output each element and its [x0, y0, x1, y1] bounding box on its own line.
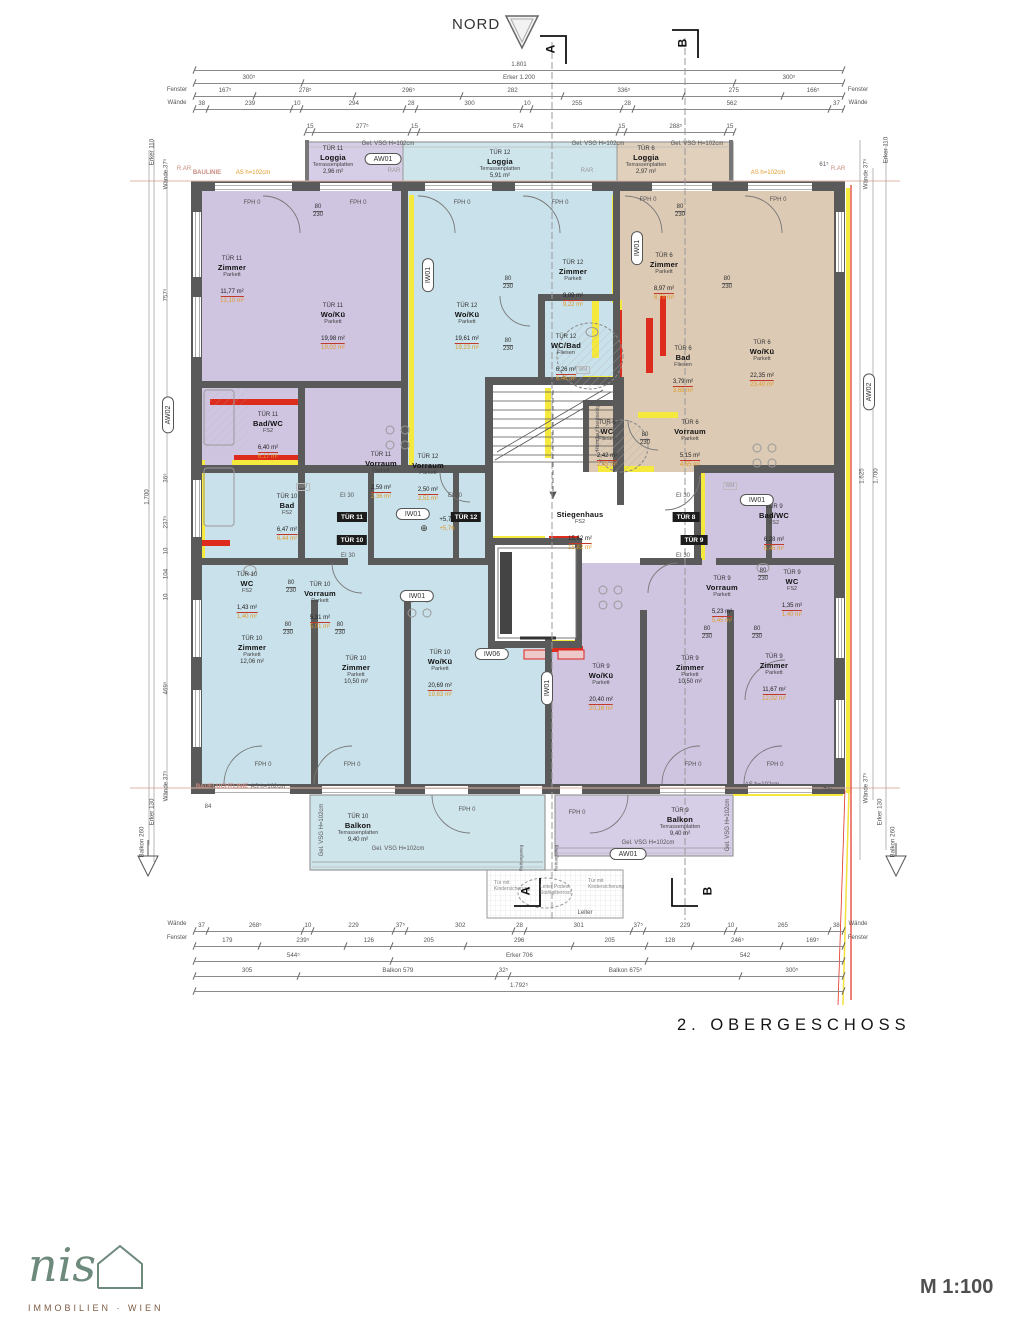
room-vorraum-t6: TÜR 6VorraumParkett5,15 m²4,55 m²: [674, 420, 706, 469]
dim-row-top-erker: 300⁵Erker 1.200300⁵: [195, 73, 843, 86]
dim: 305: [195, 966, 299, 979]
dim: 239⁵: [260, 936, 346, 949]
door-size: 80230: [313, 204, 323, 219]
gel-vsg-vert-1: Gel. VSG H=102cm: [319, 804, 325, 857]
floorplan-canvas: NORD A B A B 1.801 300⁵Erker 1.200300⁵ 1…: [0, 0, 1026, 1333]
dim: 574: [419, 122, 618, 135]
dim: 302: [407, 921, 514, 934]
vdim: 10: [163, 548, 170, 555]
dim: 296: [466, 936, 573, 949]
dim-row-top-fenster: 167⁵278⁵296⁵282336⁵275166⁵: [195, 86, 843, 99]
room-badwc-t11: TÜR 11Bad/WCFS26,40 m²6,17 m²: [253, 412, 283, 461]
vdim: Balkon 260: [890, 827, 897, 858]
room-zimmer2-t9: TÜR 9ZimmerParkett11,67 m²12,02 m²: [760, 654, 788, 703]
ei30-label: EI 30: [676, 493, 690, 499]
section-b-top: B: [675, 39, 689, 48]
vdim: Erker 130: [149, 799, 156, 826]
gel-vsg-bot-2: Gel. VSG H=102cm: [622, 840, 675, 846]
vdim: 757⁵: [163, 289, 170, 302]
dim: 205: [573, 936, 647, 949]
dim: 229: [645, 921, 726, 934]
rettungsweg-label: Rettungsweg: [519, 845, 524, 871]
fph-label: FPH 0: [349, 200, 366, 206]
scale-label: M 1:100: [920, 1276, 993, 1299]
room-stiegenhaus: StiegenhausFS215,62 m²15,82 m²: [557, 510, 604, 552]
fph-label: FPH 0: [254, 762, 271, 768]
dim: 1.792⁵: [195, 981, 843, 994]
section-a-top: A: [543, 45, 557, 54]
gel-vsg-bot-1: Gel. VSG H=102cm: [372, 846, 425, 852]
baulinie-label: BAULINIE: [193, 170, 221, 176]
vdim: 1.625: [859, 468, 866, 483]
fenster-label-left: Fenster: [167, 87, 187, 93]
door-size: 80230: [283, 622, 293, 637]
baufluchtlinie-label: BAUFLUCHTLINIE: [196, 784, 248, 790]
dim: 300: [417, 99, 522, 112]
fph-label: FPH 0: [453, 200, 470, 206]
fph-label: FPH 0: [551, 200, 568, 206]
dim: 336⁵: [563, 86, 684, 99]
room-wc-t9: TÜR 9WCFS21,35 m²1,40 m²: [782, 570, 802, 619]
rar-loggia-2: RAR: [581, 168, 594, 174]
oval-iw01-5: IW01: [740, 494, 774, 506]
dim: 239: [208, 99, 292, 112]
door-size: 80230: [503, 338, 513, 353]
as-label-tl: AS h=102cm: [236, 170, 271, 176]
wm-label: WM: [723, 482, 737, 490]
room-balkon-t9: TÜR 9BalkonTerrassenplatten9,40 m²: [660, 808, 701, 838]
dim: 544⁵: [195, 951, 392, 964]
dim: 300⁵: [195, 73, 303, 86]
dim: 166⁵: [783, 86, 843, 99]
company-logo: nis IMMOBILIEN · WIEN: [28, 1240, 164, 1313]
fenster-label-br: Fenster: [848, 935, 868, 941]
vdim: 36⁵: [163, 473, 170, 482]
vdim: Erker 130: [877, 799, 884, 826]
dim: 246⁵: [693, 936, 782, 949]
rettungsweg-label: Rettungsweg: [554, 845, 559, 871]
dim: 562: [634, 99, 831, 112]
room-loggia-t6: TÜR 6LoggiaTerrassenplatten2,97 m²: [626, 146, 667, 176]
dim-61: 61⁵: [819, 162, 828, 168]
as-label-br: AS h=102cm: [745, 782, 780, 788]
oval-iw01-1: IW01: [422, 258, 434, 292]
as-label-bl: AS h=102cm: [251, 784, 286, 790]
vdim: 469⁵: [163, 682, 170, 695]
dim: 179: [195, 936, 260, 949]
room-vorraum-t12: TÜR 12VorraumParkett2,50 m²2,51 m²: [412, 454, 444, 503]
dim: 265: [736, 921, 829, 934]
vdim: Erker 110: [883, 137, 890, 163]
vdim: 10: [163, 594, 170, 601]
dim-row-top-inner: 15277⁵1557415288⁵15: [306, 122, 734, 135]
room-zimmer-t6: TÜR 6ZimmerParkett8,97 m²8,78 m²: [650, 253, 678, 302]
tag-tuer-10: TÜR 10: [337, 535, 367, 545]
dim: 268⁵: [208, 921, 303, 934]
room-loggia-t11: TÜR 11LoggiaTerrassenplatten2,96 m²: [313, 146, 354, 176]
page-title: 2. OBERGESCHOSS: [677, 1016, 911, 1035]
door-size: 80230: [722, 276, 732, 291]
dim-row-bottom-waende: 37268⁵1022937⁵3022830137⁵2291026538: [195, 921, 843, 934]
door-size: 80230: [758, 568, 768, 583]
dim: 169⁵: [782, 936, 843, 949]
level-lower: +5,76: [439, 526, 454, 532]
vdim: Wände 37⁵: [863, 773, 870, 804]
room-woku-t11: TÜR 11Wo/KüParkett19,98 m²19,02 m²: [321, 303, 346, 352]
gel-vsg-vert-2: Gel. VSG H=102cm: [725, 799, 731, 852]
oval-iw01-4: IW01: [400, 590, 434, 602]
dim: 542: [647, 951, 843, 964]
fph-label: FPH 0: [343, 762, 360, 768]
dim: 126: [346, 936, 392, 949]
dim: 300⁵: [735, 73, 843, 86]
room-vorraum-t9: TÜR 9VorraumParkett5,23 m²5,45 m²: [706, 576, 738, 625]
fph-label: FPH 0: [684, 762, 701, 768]
section-a-bottom: A: [518, 887, 532, 896]
vdim: Balkon 260: [139, 827, 146, 858]
rar-label-tl: R.AR: [177, 166, 191, 172]
dim: 275: [684, 86, 783, 99]
rar-loggia-1: RAR: [388, 168, 401, 174]
fenster-label-bl: Fenster: [167, 935, 187, 941]
fenster-label-right: Fenster: [848, 87, 868, 93]
door-size: 80230: [752, 626, 762, 641]
north-arrow-icon: [506, 16, 538, 48]
door-size: 80230: [335, 622, 345, 637]
fph-label: FPH 0: [769, 197, 786, 203]
tag-tuer-12: TÜR 12: [451, 512, 481, 522]
wm-label: WM: [296, 483, 310, 491]
room-vorraum-t10: TÜR 10VorraumParkett5,31 m²5,01 m²: [304, 582, 336, 631]
oval-iw01-2: IW01: [631, 231, 643, 265]
door-size: 80230: [702, 626, 712, 641]
vdim: Erker 110: [149, 139, 156, 165]
dim: 1.801: [195, 60, 843, 73]
waende-label-bl: Wände: [167, 921, 186, 927]
room-zimmer-t12: TÜR 12ZimmerParkett9,09 m²9,22 m²: [559, 260, 587, 309]
dim: 15: [726, 122, 734, 135]
dim: 294: [302, 99, 405, 112]
ei30-label: EI 30: [340, 493, 354, 499]
ei30-label: EI 30: [676, 553, 690, 559]
room-balkon-t10: TÜR 10BalkonTerrassenplatten9,40 m²: [338, 814, 379, 844]
tag-tuer-8: TÜR 8: [673, 512, 700, 522]
gel-vsg-top-3: Gel. VSG H=102cm: [671, 141, 724, 147]
oval-aw02-right: AW02: [863, 374, 875, 411]
room-zimmer2-t10: TÜR 10ZimmerParkett10,50 m²: [342, 656, 370, 686]
room-wc-t10: TÜR 10WCFS21,43 m²1,40 m²: [237, 572, 258, 621]
door-size: 80230: [675, 204, 685, 219]
fph-label: FPH 0: [458, 807, 475, 813]
vdim: Wände 37⁵: [863, 159, 870, 190]
ei30-label: EI 30: [448, 493, 462, 499]
floor-plan-drawing: [0, 0, 1026, 1333]
oval-iw06: IW06: [475, 648, 509, 660]
dim-row-bottom-erker: 544⁵Erker 706542: [195, 951, 843, 964]
room-bad-t10: TÜR 10BadFS26,47 m²6,44 m²: [277, 494, 298, 543]
dim: 300⁵: [741, 966, 843, 979]
room-woku-t9: TÜR 9Wo/KüParkett20,40 m²20,16 m²: [589, 664, 614, 713]
dim: 255: [532, 99, 621, 112]
dim: Balkon 579: [299, 966, 497, 979]
fph-label: FPH 0: [766, 762, 783, 768]
oval-aw01-top: AW01: [365, 153, 402, 165]
handlauf-label: Handlauf beidseitig: [595, 405, 601, 452]
rar-label-tr: R.AR: [831, 166, 845, 172]
dim: 288⁵: [626, 122, 726, 135]
vdim: 1.700: [144, 489, 151, 504]
fph-label: FPH 0: [243, 200, 260, 206]
dim: 167⁵: [195, 86, 255, 99]
kindersicherung-label: Tür mit Kindersicherung: [588, 878, 640, 891]
room-zimmer-t11: TÜR 11ZimmerParkett11,77 m²12,10 m²: [218, 256, 246, 305]
logo-script: nis: [28, 1238, 96, 1292]
oval-aw02-left: AW02: [162, 397, 174, 434]
vdim: 237⁵: [163, 516, 170, 529]
section-b-bottom: B: [700, 887, 714, 896]
vdim: Wände 37⁵: [163, 159, 170, 190]
fph-label: FPH 0: [639, 197, 656, 203]
dim: 38: [830, 921, 843, 934]
as-label-tr: AS h=102cm: [751, 170, 786, 176]
dim: 37: [830, 99, 843, 112]
room-woku-t6: TÜR 6Wo/KüParkett22,35 m²23,40 m²: [750, 340, 775, 389]
dim: Erker 706: [392, 951, 647, 964]
dim: 205: [392, 936, 466, 949]
tag-tuer-9: TÜR 9: [681, 535, 708, 545]
dim-74: 74⁵: [823, 788, 832, 794]
gel-vsg-top-2: Gel. VSG H=102cm: [572, 141, 625, 147]
dim: Balkon 675⁵: [510, 966, 740, 979]
dim: Erker 1.200: [303, 73, 735, 86]
waende-label-right: Wände: [848, 100, 867, 106]
room-loggia-t12: TÜR 12LoggiaTerrassenplatten5,91 m²: [480, 150, 521, 180]
dim: 301: [526, 921, 632, 934]
dim-row-top-total: 1.801: [195, 60, 843, 73]
vdim: 104: [163, 569, 170, 579]
level-point-icon: ⊕: [420, 523, 428, 534]
fph-label: FPH 0: [568, 810, 585, 816]
dim-row-top-waende: 382391029428300102552856237: [195, 99, 843, 112]
room-badwc-t9: TÜR 9Bad/WCFS26,28 m²6,45 m²: [759, 504, 789, 553]
room-woku-t12: TÜR 12Wo/KüParkett19,61 m²19,23 m²: [455, 303, 480, 352]
room-vorraum-t11: TÜR 11VorraumParkett2,59 m²2,36 m²: [365, 452, 397, 501]
oval-iw01-3: IW01: [396, 508, 430, 520]
vdim: Wände 37⁵: [163, 771, 170, 802]
room-wcbad-t12: TÜR 12WC/BadFliesen6,26 m²6,46 m²: [551, 334, 581, 383]
waende-label-left: Wände: [167, 100, 186, 106]
north-label: NORD: [452, 16, 500, 33]
dim: 277⁵: [314, 122, 410, 135]
door-size: 80230: [286, 580, 296, 595]
dim: 282: [462, 86, 564, 99]
oval-aw01-bottom: AW01: [610, 848, 647, 860]
dim-row-bottom-fenster: 179239⁵126205296205128246⁵169⁵: [195, 936, 843, 949]
ei30-label: EI 30: [341, 553, 355, 559]
room-woku-t10: TÜR 10Wo/KüParkett20,69 m²19,83 m²: [428, 650, 453, 699]
tag-tuer-11: TÜR 11: [337, 512, 367, 522]
door-size: 80230: [503, 276, 513, 291]
oval-iw01-6: IW01: [541, 671, 553, 705]
dim-row-bottom-total: 1.792⁵: [195, 981, 843, 994]
vdim: 1.700: [873, 468, 880, 483]
room-bad-t6: TÜR 6BadFliesen3,79 m²3,65 m²: [673, 346, 693, 395]
dim: 128: [647, 936, 693, 949]
room-zimmer1-t10: TÜR 10ZimmerParkett12,06 m²: [238, 636, 266, 666]
gel-vsg-top-1: Gel. VSG H=102cm: [362, 141, 415, 147]
dim: 229: [313, 921, 394, 934]
wm-label: WM: [576, 366, 590, 374]
dim: 278⁵: [255, 86, 355, 99]
room-zimmer1-t9: TÜR 9ZimmerParkett10,50 m²: [676, 656, 704, 686]
dim-84: 84: [205, 804, 212, 810]
dim-row-bottom-balkon: 305Balkon 57932⁵Balkon 675⁵300⁵: [195, 966, 843, 979]
dim: 296⁵: [355, 86, 462, 99]
door-size: 80230: [640, 432, 650, 447]
leiter-dim-label: Leiter: [577, 910, 592, 916]
elevator: [498, 548, 576, 638]
leiter-podest-label: Leiter Podest Stahlgitterrost: [540, 884, 592, 897]
waende-label-br: Wände: [848, 921, 867, 927]
logo-subtitle: IMMOBILIEN · WIEN: [28, 1303, 164, 1313]
